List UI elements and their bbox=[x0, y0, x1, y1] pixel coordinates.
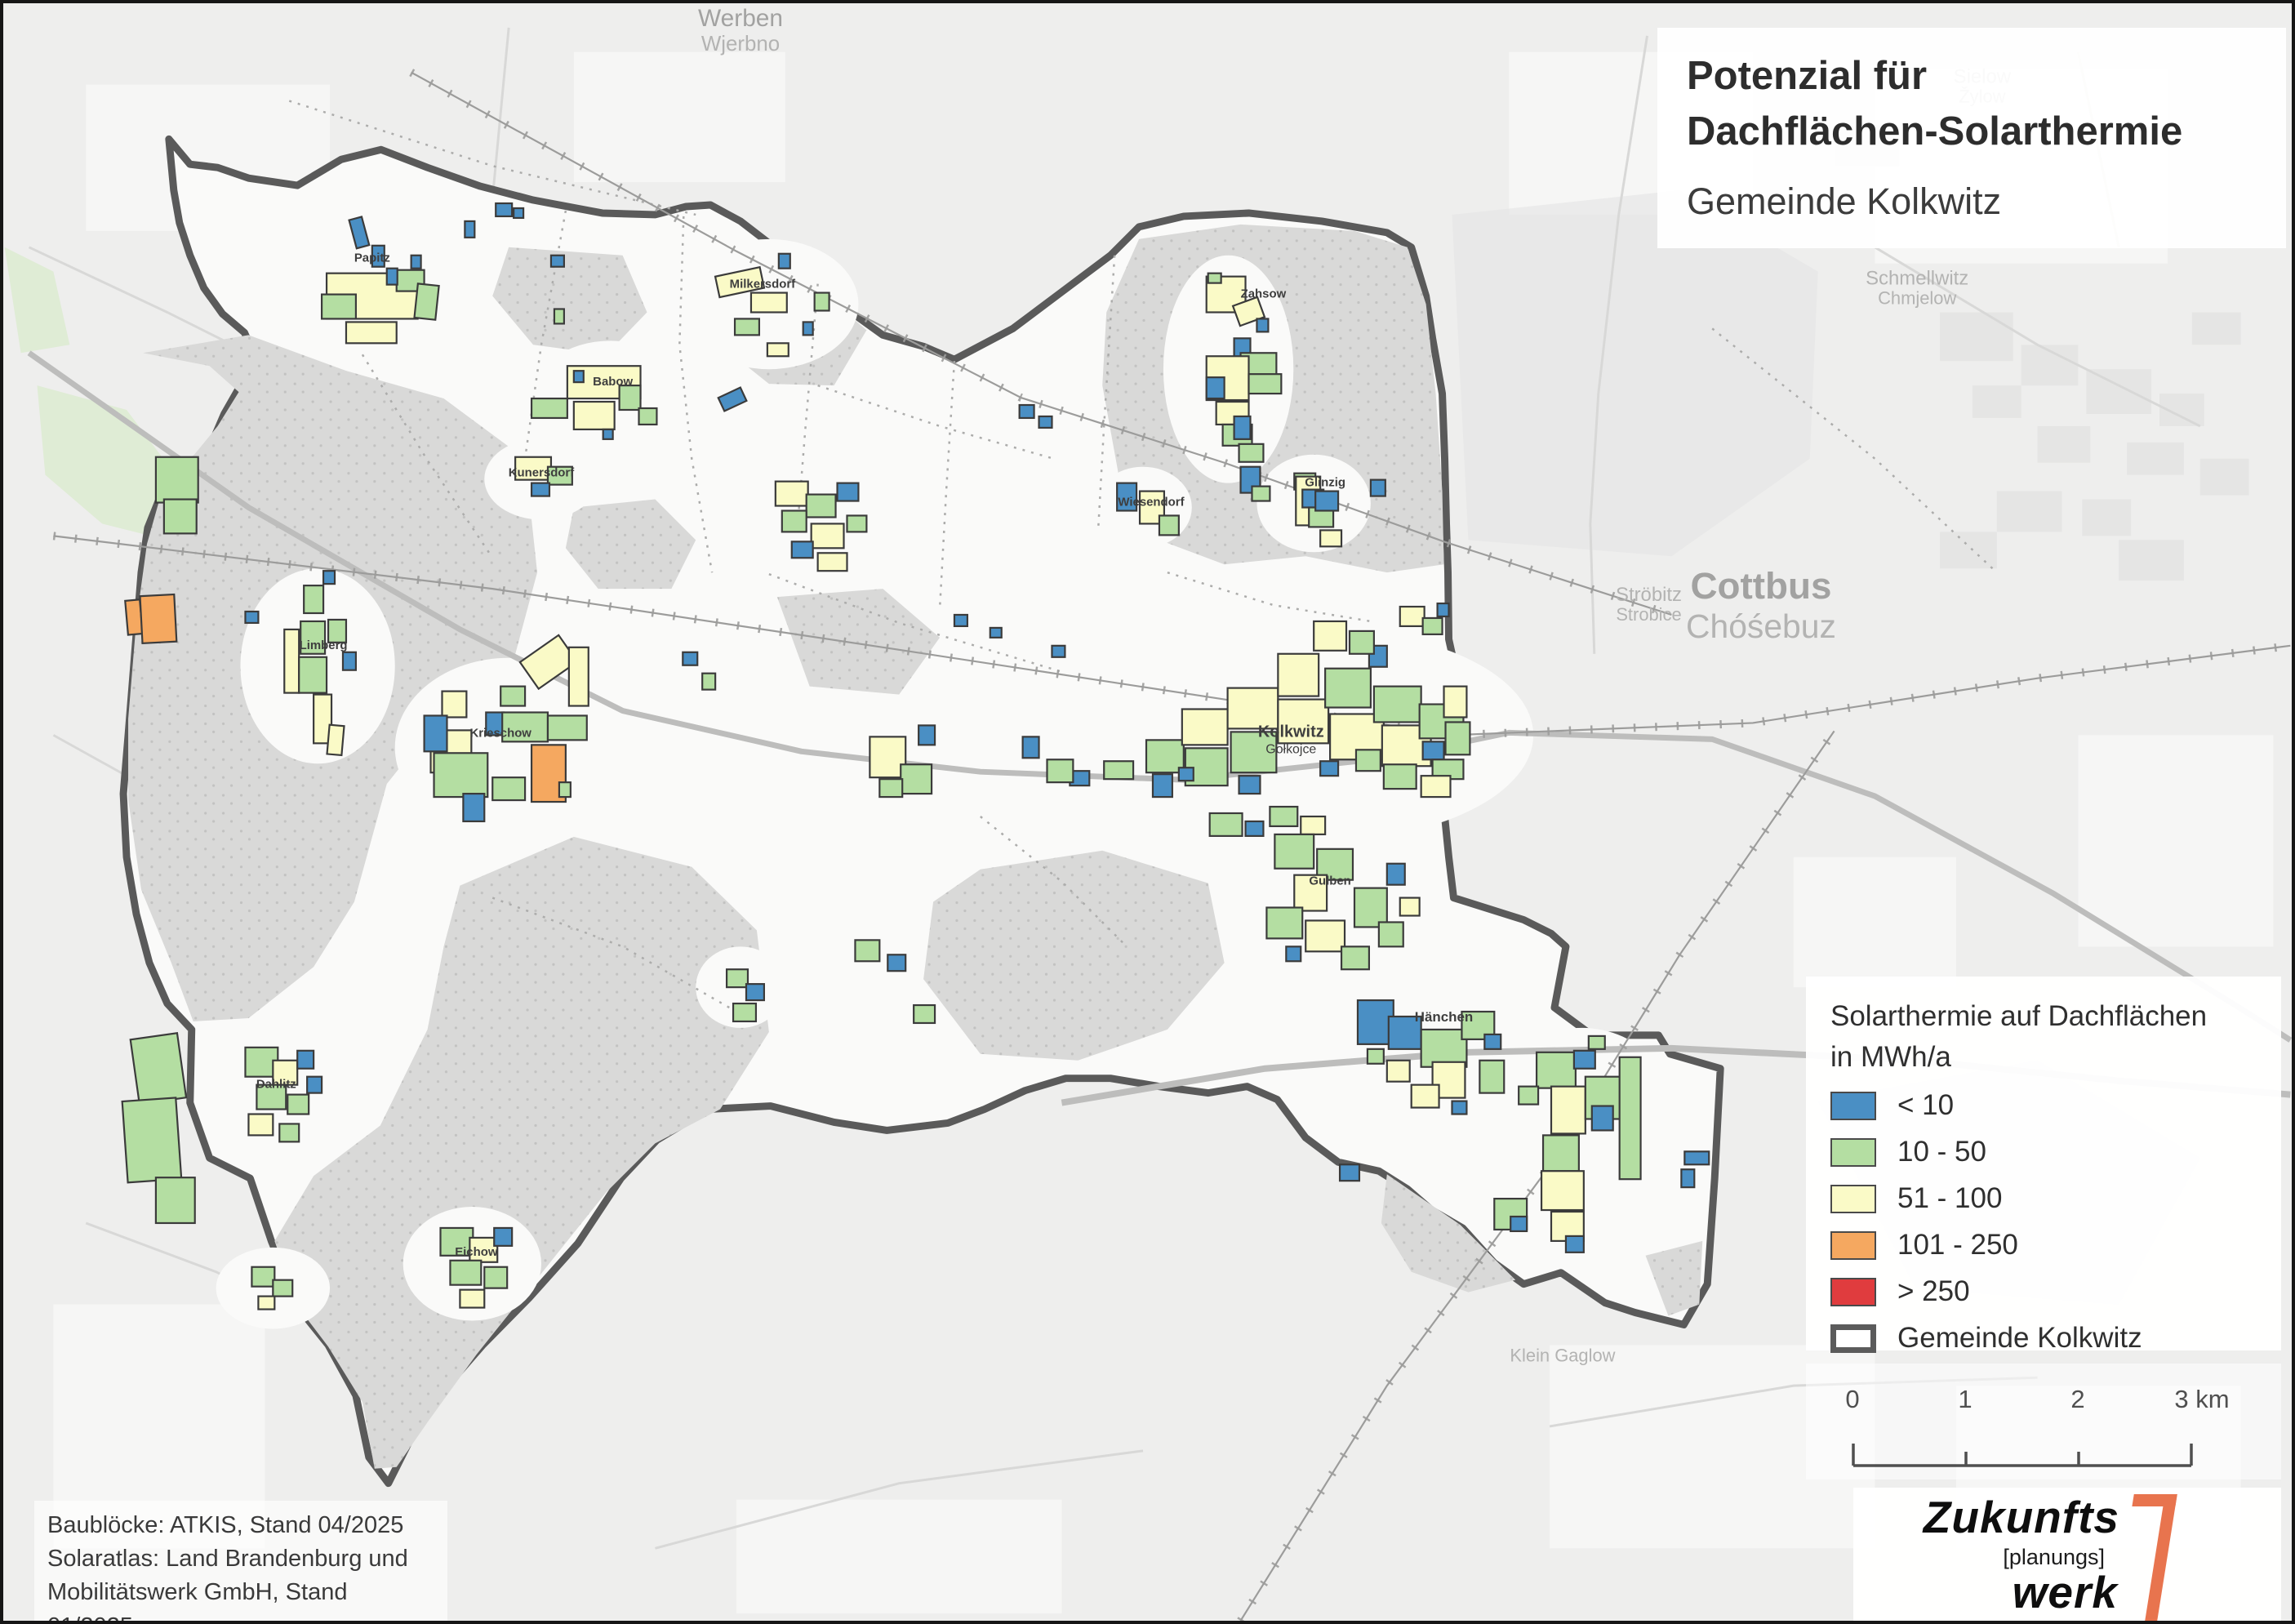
logo-text-line3: werk bbox=[2013, 1566, 2118, 1618]
legend-header-line1: Solarthermie auf Dachflächen bbox=[1830, 996, 2257, 1037]
svg-text:Glinzig: Glinzig bbox=[1305, 476, 1345, 490]
legend-label-10-50: 10 - 50 bbox=[1897, 1136, 1986, 1168]
svg-text:Krieschow: Krieschow bbox=[469, 726, 531, 740]
legend-label-51-100: 51 - 100 bbox=[1897, 1182, 2002, 1215]
svg-text:Schmellwitz: Schmellwitz bbox=[1866, 268, 1968, 290]
svg-text:Gulben: Gulben bbox=[1309, 874, 1350, 888]
svg-text:Kunersdorf: Kunersdorf bbox=[509, 466, 574, 480]
svg-text:Kolkwitz: Kolkwitz bbox=[1258, 723, 1324, 741]
map-title-line2: Dachflächen-Solarthermie bbox=[1687, 105, 2286, 160]
legend-row-boundary: Gemeinde Kolkwitz bbox=[1830, 1320, 2257, 1356]
svg-text:Strobice: Strobice bbox=[1616, 604, 1681, 625]
svg-text:Gołkojce: Gołkojce bbox=[1265, 742, 1316, 756]
legend-swatch-boundary bbox=[1830, 1324, 1876, 1353]
svg-text:Chóśebuz: Chóśebuz bbox=[1686, 607, 1836, 645]
legend-row-gt250: > 250 bbox=[1830, 1274, 2257, 1310]
svg-text:Chmjelow: Chmjelow bbox=[1878, 288, 1956, 309]
svg-text:Papitz: Papitz bbox=[354, 251, 390, 265]
legend-label-lt10: < 10 bbox=[1897, 1089, 1954, 1122]
legend-row-51-100: 51 - 100 bbox=[1830, 1181, 2257, 1217]
attribution-line3: Mobilitätswerk GmbH, Stand 01/2025 bbox=[47, 1576, 434, 1624]
legend-swatch-lt10 bbox=[1830, 1092, 1876, 1120]
scalebar-line bbox=[1852, 1439, 2195, 1468]
legend-row-101-250: 101 - 250 bbox=[1830, 1227, 2257, 1263]
logo-text-line1: Zukunfts bbox=[1924, 1491, 2119, 1543]
svg-text:Dahlitz: Dahlitz bbox=[256, 1078, 296, 1092]
logo-bracket-icon bbox=[2111, 1494, 2177, 1624]
attribution-line1: Baublöcke: ATKIS, Stand 04/2025 bbox=[47, 1509, 434, 1542]
legend-swatch-gt250 bbox=[1830, 1278, 1876, 1306]
svg-text:Babow: Babow bbox=[593, 375, 633, 389]
svg-text:Wjerbno: Wjerbno bbox=[701, 33, 780, 56]
map-subtitle: Gemeinde Kolkwitz bbox=[1687, 180, 2286, 223]
svg-text:Milkersdorf: Milkersdorf bbox=[730, 278, 795, 291]
svg-text:Klein Gaglow: Klein Gaglow bbox=[1510, 1345, 1615, 1365]
scalebar-tick-0: 0 bbox=[1804, 1385, 1901, 1414]
svg-text:Limberg: Limberg bbox=[300, 638, 348, 652]
legend-row-lt10: < 10 bbox=[1830, 1088, 2257, 1123]
attribution-line2: Solaratlas: Land Brandenburg und bbox=[47, 1542, 434, 1576]
legend-label-101-250: 101 - 250 bbox=[1897, 1229, 2018, 1261]
legend-header-line2: in MWh/a bbox=[1830, 1037, 2257, 1078]
svg-text:Eichow: Eichow bbox=[455, 1245, 498, 1259]
svg-text:Hänchen: Hänchen bbox=[1415, 1009, 1473, 1025]
scalebar-tick-2: 2 bbox=[2029, 1385, 2127, 1414]
scalebar-tick-3: 3 km bbox=[2153, 1385, 2251, 1414]
scalebar-tick-1: 1 bbox=[1916, 1385, 2014, 1414]
svg-text:Werben: Werben bbox=[698, 5, 783, 32]
legend-row-10-50: 10 - 50 bbox=[1830, 1134, 2257, 1170]
svg-text:Wiesendorf: Wiesendorf bbox=[1118, 496, 1184, 509]
legend-label-gt250: > 250 bbox=[1897, 1275, 1970, 1308]
legend-swatch-10-50 bbox=[1830, 1138, 1876, 1167]
svg-text:Ströbitz: Ströbitz bbox=[1616, 584, 1682, 606]
scalebar: 0 1 2 3 km bbox=[1806, 1364, 2281, 1479]
svg-text:Cottbus: Cottbus bbox=[1690, 565, 1831, 607]
logo-zukunftswerk: Zukunfts [planungs] werk bbox=[1853, 1488, 2281, 1623]
title-panel: Potenzial für Dachflächen-Solarthermie G… bbox=[1657, 28, 2286, 248]
attribution: Baublöcke: ATKIS, Stand 04/2025 Solaratl… bbox=[34, 1501, 447, 1624]
legend-swatch-101-250 bbox=[1830, 1231, 1876, 1260]
map-poster: WerbenWjerbnoCottbusChóśebuzSchmellwitzC… bbox=[0, 0, 2295, 1624]
legend-label-boundary: Gemeinde Kolkwitz bbox=[1897, 1322, 2142, 1355]
legend-swatch-51-100 bbox=[1830, 1185, 1876, 1213]
legend-panel: Solarthermie auf Dachflächen in MWh/a < … bbox=[1806, 977, 2281, 1350]
svg-text:Zahsow: Zahsow bbox=[1241, 287, 1287, 301]
map-title-line1: Potenzial für bbox=[1687, 49, 2286, 105]
